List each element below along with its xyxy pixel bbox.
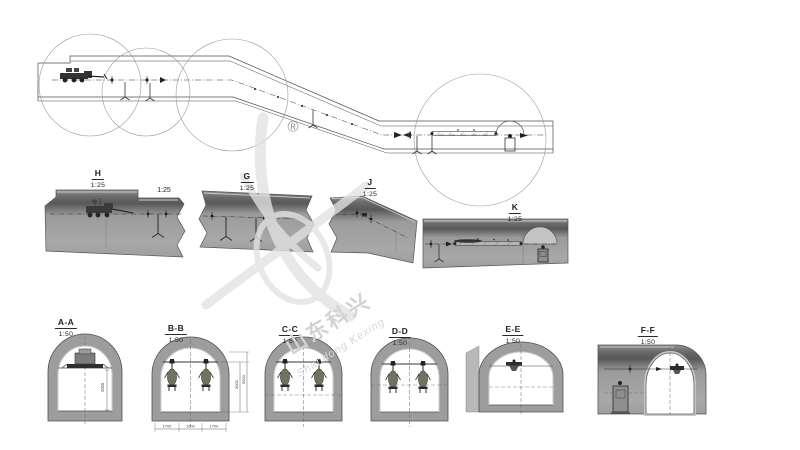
jackleg-drill bbox=[165, 361, 180, 392]
callout-label: A-A bbox=[55, 318, 77, 329]
equipment-cabinet bbox=[611, 381, 630, 414]
callout-label: F-F bbox=[638, 326, 658, 337]
callout-scale: 1:50 bbox=[55, 330, 77, 338]
tunnel-end-dome-plan bbox=[496, 121, 528, 151]
dim-text-bb-w1: 1700 bbox=[163, 425, 171, 429]
jackleg-drill bbox=[199, 361, 214, 392]
callout-label: E-E bbox=[502, 325, 523, 336]
ventilation-fan bbox=[506, 360, 522, 372]
callout-cross-dd: D-D 1:50 bbox=[389, 322, 411, 347]
roof-bolts-plan bbox=[111, 76, 437, 154]
callout-cross-ff: F-F 1:50 bbox=[638, 321, 658, 346]
dim-text-bb-w2: 1500 bbox=[186, 425, 194, 429]
drawing-canvas: 2000 3000 5600 1700 1500 1700 bbox=[0, 0, 800, 450]
callout-scale: 1:50 bbox=[389, 339, 411, 347]
tunnel-outline-plan bbox=[38, 56, 553, 153]
callout-label: H bbox=[92, 169, 105, 180]
callout-scale: 1:25 bbox=[240, 184, 254, 192]
callout-label: D-D bbox=[389, 327, 411, 338]
callout-scale: 1:25 bbox=[508, 215, 522, 223]
callout-cross-bb: B-B 1:50 bbox=[165, 319, 187, 344]
callout-section-k: K 1:25 bbox=[508, 198, 522, 223]
cross-section-f bbox=[598, 345, 706, 414]
section-k-drawing bbox=[423, 219, 568, 268]
dim-text-bb-w3: 1700 bbox=[210, 425, 218, 429]
callout-label: J bbox=[364, 178, 375, 189]
callout-scale: 1:25 bbox=[363, 190, 377, 198]
callout-scale: 1:25 bbox=[91, 181, 105, 189]
dim-text-aa: 2000 bbox=[100, 382, 105, 392]
dimension-aa-height: 2000 bbox=[100, 370, 109, 410]
callout-label: B-B bbox=[165, 324, 187, 335]
callout-section-j: J 1:25 bbox=[363, 173, 377, 198]
jackleg-drill bbox=[386, 363, 401, 394]
callout-scale: 1:50 bbox=[165, 336, 187, 344]
inline-scale-label: 1:25 bbox=[157, 187, 171, 194]
callout-scale: 1:50 bbox=[502, 337, 523, 345]
jackleg-drill bbox=[416, 363, 431, 394]
cross-section-b: 3000 5600 1700 1500 1700 bbox=[152, 337, 249, 432]
callout-scale: 1:50 bbox=[638, 338, 658, 346]
registered-trademark-symbol: ® bbox=[287, 119, 298, 136]
cross-section-e bbox=[466, 342, 563, 416]
section-h-drawing bbox=[45, 190, 185, 257]
callout-cross-ee: E-E 1:50 bbox=[502, 320, 523, 345]
conveyor-plan bbox=[431, 129, 498, 135]
dim-text-bb-2: 5600 bbox=[241, 374, 246, 384]
callout-label: K bbox=[509, 203, 522, 214]
cross-section-a: 2000 bbox=[48, 334, 122, 426]
callout-section-h: H 1:25 bbox=[91, 164, 105, 189]
cross-section-d bbox=[371, 338, 448, 427]
tunnel-centerline-plan bbox=[52, 80, 548, 135]
callout-label: G bbox=[240, 172, 253, 183]
callout-section-g: G 1:25 bbox=[240, 167, 254, 192]
drawing-linework: 2000 3000 5600 1700 1500 1700 bbox=[0, 0, 800, 450]
callout-cross-aa: A-A 1:50 bbox=[55, 313, 77, 338]
dim-text-bb-1: 3000 bbox=[234, 379, 239, 389]
jackleg-drill bbox=[278, 361, 293, 392]
dimension-bb-widths: 1700 1500 1700 bbox=[155, 423, 226, 432]
